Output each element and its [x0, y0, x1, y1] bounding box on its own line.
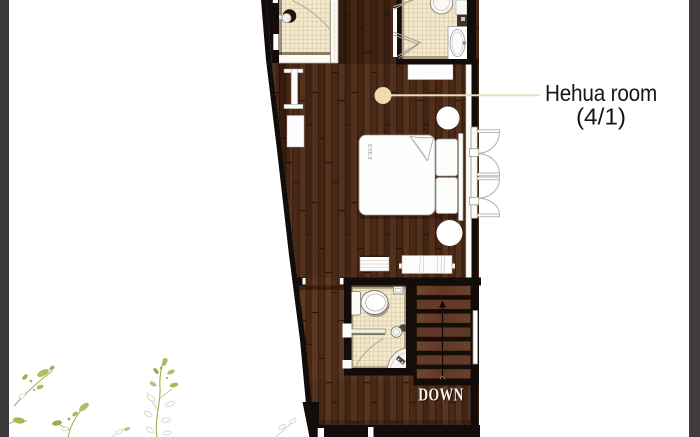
svg-text:DOWN: DOWN: [418, 386, 464, 405]
svg-text:5'X6.5': 5'X6.5': [366, 144, 372, 160]
svg-text:(4/1): (4/1): [576, 105, 626, 130]
svg-text:Hehua room: Hehua room: [545, 80, 657, 106]
